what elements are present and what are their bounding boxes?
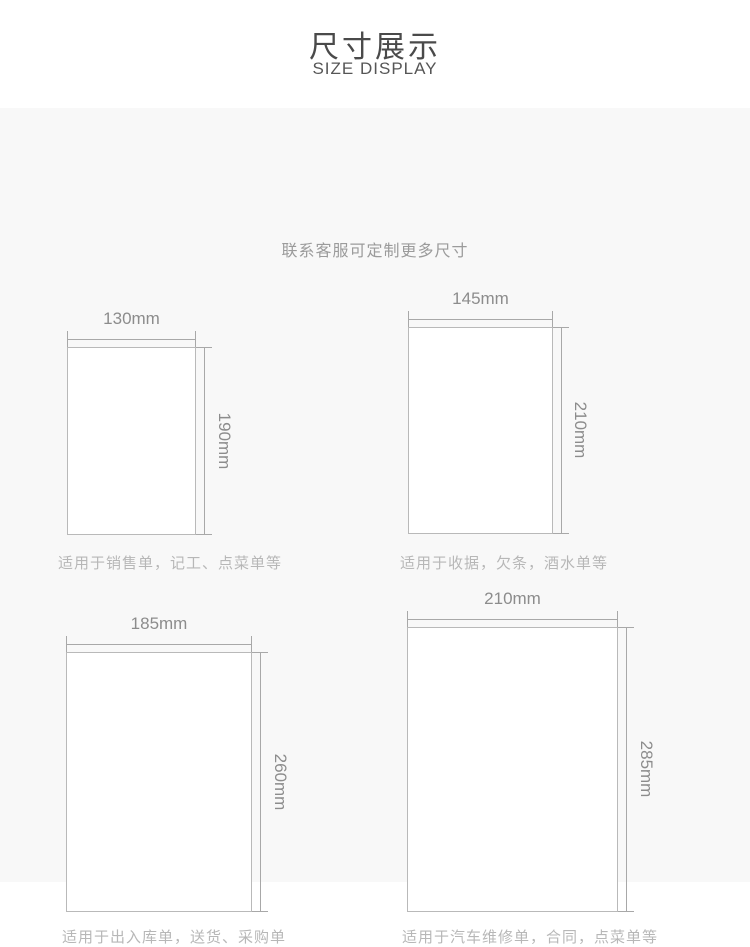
width-dimension-label: 210mm	[407, 588, 618, 610]
paper-outline	[66, 652, 252, 912]
height-dimension-line	[252, 652, 268, 912]
height-dimension-line	[553, 327, 569, 534]
height-dimension-label: 190mm	[214, 409, 234, 473]
width-dimension-line	[407, 611, 618, 627]
size-display-section: 联系客服可定制更多尺寸 130mm 190mm 适用于销售单，记工、点菜单等 1…	[0, 108, 750, 882]
width-dimension-label: 185mm	[66, 613, 252, 635]
paper-outline	[407, 627, 618, 912]
width-dimension-line	[67, 331, 196, 347]
height-dimension-label: 260mm	[270, 750, 290, 814]
height-dimension-line	[196, 347, 212, 535]
paper-outline	[408, 327, 553, 534]
usage-description: 适用于汽车维修单，合同，点菜单等	[402, 926, 658, 947]
size-display-page: 尺寸展示 SIZE DISPLAY 联系客服可定制更多尺寸 130mm 190m…	[0, 0, 750, 882]
usage-description: 适用于销售单，记工、点菜单等	[58, 552, 282, 573]
page-header: 尺寸展示 SIZE DISPLAY	[0, 0, 750, 108]
width-dimension-label: 145mm	[408, 288, 553, 310]
height-dimension-label: 210mm	[570, 398, 590, 462]
customization-note: 联系客服可定制更多尺寸	[0, 237, 750, 261]
width-dimension-label: 130mm	[67, 308, 196, 330]
usage-description: 适用于出入库单，送货、采购单	[62, 926, 286, 947]
width-dimension-line	[408, 311, 553, 327]
width-dimension-line	[66, 636, 252, 652]
height-dimension-label: 285mm	[636, 737, 656, 801]
height-dimension-line	[618, 627, 634, 912]
paper-outline	[67, 347, 196, 535]
page-subtitle: SIZE DISPLAY	[0, 59, 750, 79]
usage-description: 适用于收据，欠条，酒水单等	[400, 552, 608, 573]
